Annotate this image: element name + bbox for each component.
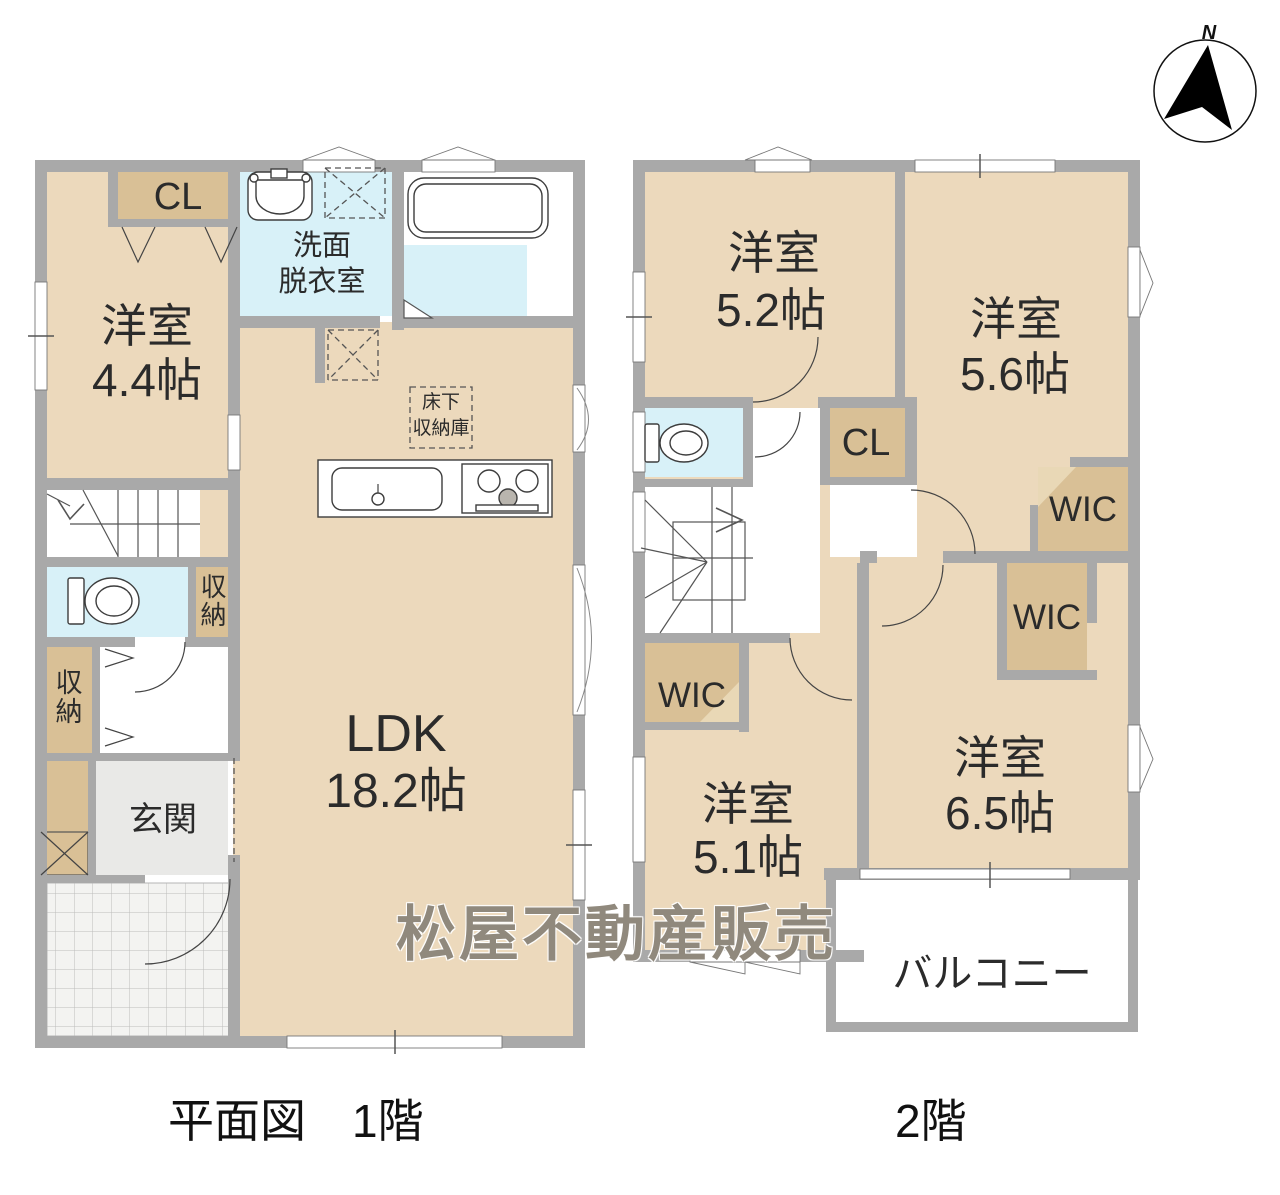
toilet-icon-1f [68, 578, 139, 624]
washbasin-icon [248, 169, 312, 220]
label-wic-middle: WIC [1013, 600, 1081, 635]
room-label-f1-washroom-2: 脱衣室 [278, 268, 365, 297]
compass-north-label: N [1202, 22, 1216, 45]
room-size-f2-65: 6.5帖 [945, 790, 1055, 836]
room-label-f1-entrance: 玄関 [129, 803, 197, 837]
toilet-icon-2f [645, 424, 708, 462]
watermark: 松屋不動産販売 [396, 886, 837, 973]
room-label-f1-ldk: LDK [345, 708, 446, 760]
label-wic-lower: WIC [658, 678, 726, 713]
label-storage-by-hall: 収納 [53, 668, 80, 726]
room-size-f1-ldk: 18.2帖 [325, 768, 466, 816]
floor-plan-page: 洋室 4.4帖 CL 洗面 脱衣室 床下 収納庫 LDK 18.2帖 収納 収納… [0, 0, 1280, 1195]
room-size-f2-52: 5.2帖 [716, 287, 826, 333]
caption-floor1: 平面図 1階 [168, 1098, 424, 1144]
bathtub-icon [408, 178, 548, 238]
room-size-f2-56: 5.6帖 [960, 351, 1070, 397]
label-underfloor-storage-1: 床下 [422, 393, 460, 412]
room-label-f1-western: 洋室 [101, 303, 193, 349]
label-wic-upper: WIC [1049, 492, 1117, 527]
room-label-f2-52: 洋室 [728, 230, 820, 276]
room-label-f2-56: 洋室 [970, 296, 1062, 342]
label-underfloor-storage-2: 収納庫 [412, 419, 469, 438]
room-label-f1-washroom-1: 洗面 [293, 232, 351, 261]
room-label-f2-balcony: バルコニー [892, 954, 1091, 994]
caption-floor2: 2階 [895, 1098, 967, 1144]
room-size-f1-western: 4.4帖 [92, 357, 202, 403]
compass-icon [1154, 40, 1256, 142]
room-size-f2-51: 5.1帖 [693, 834, 803, 880]
room-label-f2-closet: CL [842, 424, 891, 462]
kitchen-counter-icon [318, 460, 552, 517]
room-label-f1-closet: CL [154, 178, 203, 216]
room-label-f2-65: 洋室 [954, 735, 1046, 781]
label-storage-by-toilet: 収納 [199, 573, 225, 629]
room-label-f2-51: 洋室 [702, 781, 794, 827]
